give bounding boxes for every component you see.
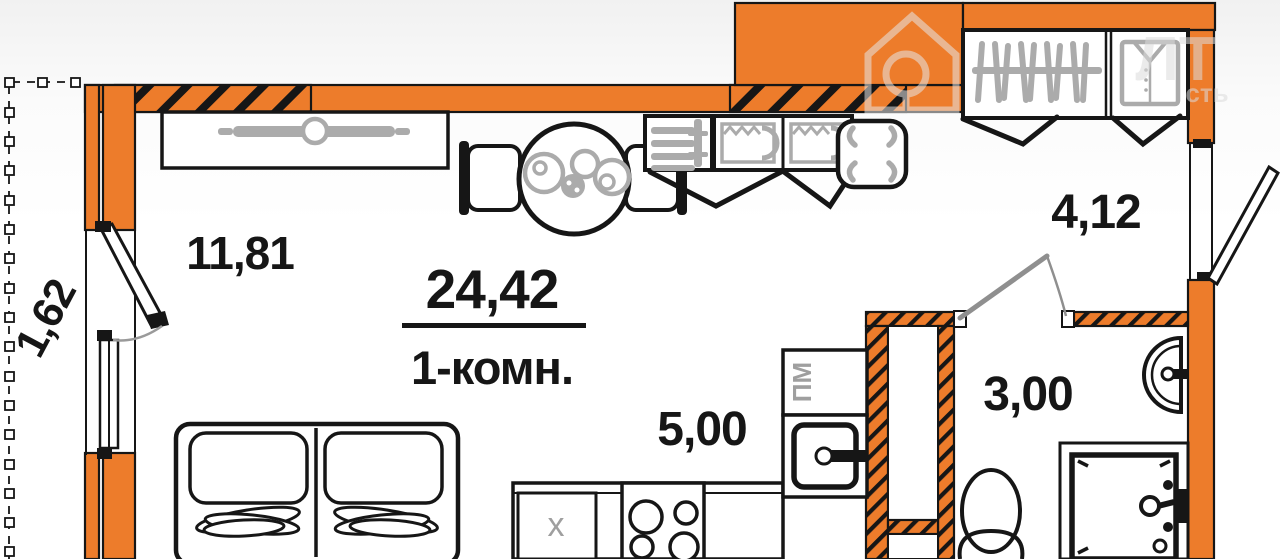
sofa-back-cushion-right bbox=[325, 433, 442, 503]
dishwasher-label: ПМ bbox=[787, 362, 817, 402]
watermark-text-2: сть bbox=[1185, 78, 1228, 108]
shaft-lower bbox=[888, 534, 938, 559]
bath-door-jamb-right bbox=[1062, 311, 1074, 327]
wardrobe-door-fold-left bbox=[963, 117, 1057, 144]
shaft-divider bbox=[888, 520, 938, 534]
burner bbox=[630, 501, 662, 533]
living-room: 11,81 bbox=[162, 112, 458, 559]
bathroom: 3,00 bbox=[960, 256, 1188, 559]
shower-mixer bbox=[1174, 489, 1188, 523]
window-mullion-bottom bbox=[97, 448, 112, 459]
chair-left bbox=[468, 146, 520, 210]
wall-left-top-inner bbox=[103, 85, 135, 230]
sofa-back-cushion-left bbox=[190, 433, 307, 503]
title-underline bbox=[402, 323, 586, 328]
bath-door-swing-arc bbox=[1047, 256, 1066, 316]
sofa bbox=[176, 424, 458, 559]
total-area-value: 24,42 bbox=[426, 258, 559, 320]
bathroom-area-label: 3,00 bbox=[983, 368, 1072, 421]
kitchen-area-label: 5,00 bbox=[657, 403, 746, 456]
apartment-type-label: 1-комн. bbox=[411, 341, 573, 394]
balcony-area-label: 1,62 bbox=[6, 272, 86, 365]
balcony-door-leaf bbox=[100, 224, 164, 327]
fridge-mark: x bbox=[548, 506, 565, 544]
wall-top-hatch-left bbox=[115, 85, 311, 112]
wall-right-lower bbox=[1188, 280, 1214, 559]
toilet bbox=[960, 470, 1023, 559]
shower-drain bbox=[1154, 540, 1166, 552]
bath-sink bbox=[1144, 338, 1188, 412]
entrance-jamb-top bbox=[1193, 139, 1211, 148]
living-area-label: 11,81 bbox=[186, 227, 294, 279]
wall-kitchen-right bbox=[866, 326, 888, 559]
wall-kitchen-cap bbox=[866, 312, 954, 326]
burner bbox=[631, 536, 653, 558]
stool bbox=[838, 121, 906, 187]
burner bbox=[675, 502, 697, 524]
entrance-door-leaf bbox=[1208, 167, 1278, 284]
burner bbox=[670, 533, 698, 559]
wall-bath-left bbox=[938, 326, 954, 559]
wall-left-bottom-inner bbox=[103, 453, 135, 559]
shower bbox=[1060, 443, 1188, 559]
bath-door-leaf bbox=[960, 256, 1047, 318]
wall-left-top-outer bbox=[85, 85, 99, 230]
shaft bbox=[888, 326, 938, 520]
tableware-icons bbox=[525, 151, 629, 198]
wardrobe-door-fold-right bbox=[1113, 116, 1180, 144]
balcony-door-hinge bbox=[95, 221, 111, 232]
wall-bath-top bbox=[1074, 312, 1188, 326]
window-mullion-top bbox=[97, 330, 112, 341]
floorplan-drawing: 1,62 bbox=[0, 0, 1280, 559]
hallway-area-label: 4,12 bbox=[1051, 186, 1140, 239]
wall-left-bottom-outer bbox=[85, 453, 99, 559]
shower-knob bbox=[1141, 497, 1159, 515]
balcony-door-window bbox=[86, 221, 169, 459]
area-title: 24,42 1-комн. bbox=[402, 258, 586, 394]
dishwasher: ПМ bbox=[783, 350, 867, 415]
stove bbox=[622, 483, 704, 559]
floorplan-page: 1,62 bbox=[0, 0, 1280, 559]
entrance-door bbox=[1190, 139, 1278, 284]
balcony: 1,62 bbox=[5, 78, 86, 559]
kitchen-sink bbox=[783, 415, 868, 497]
